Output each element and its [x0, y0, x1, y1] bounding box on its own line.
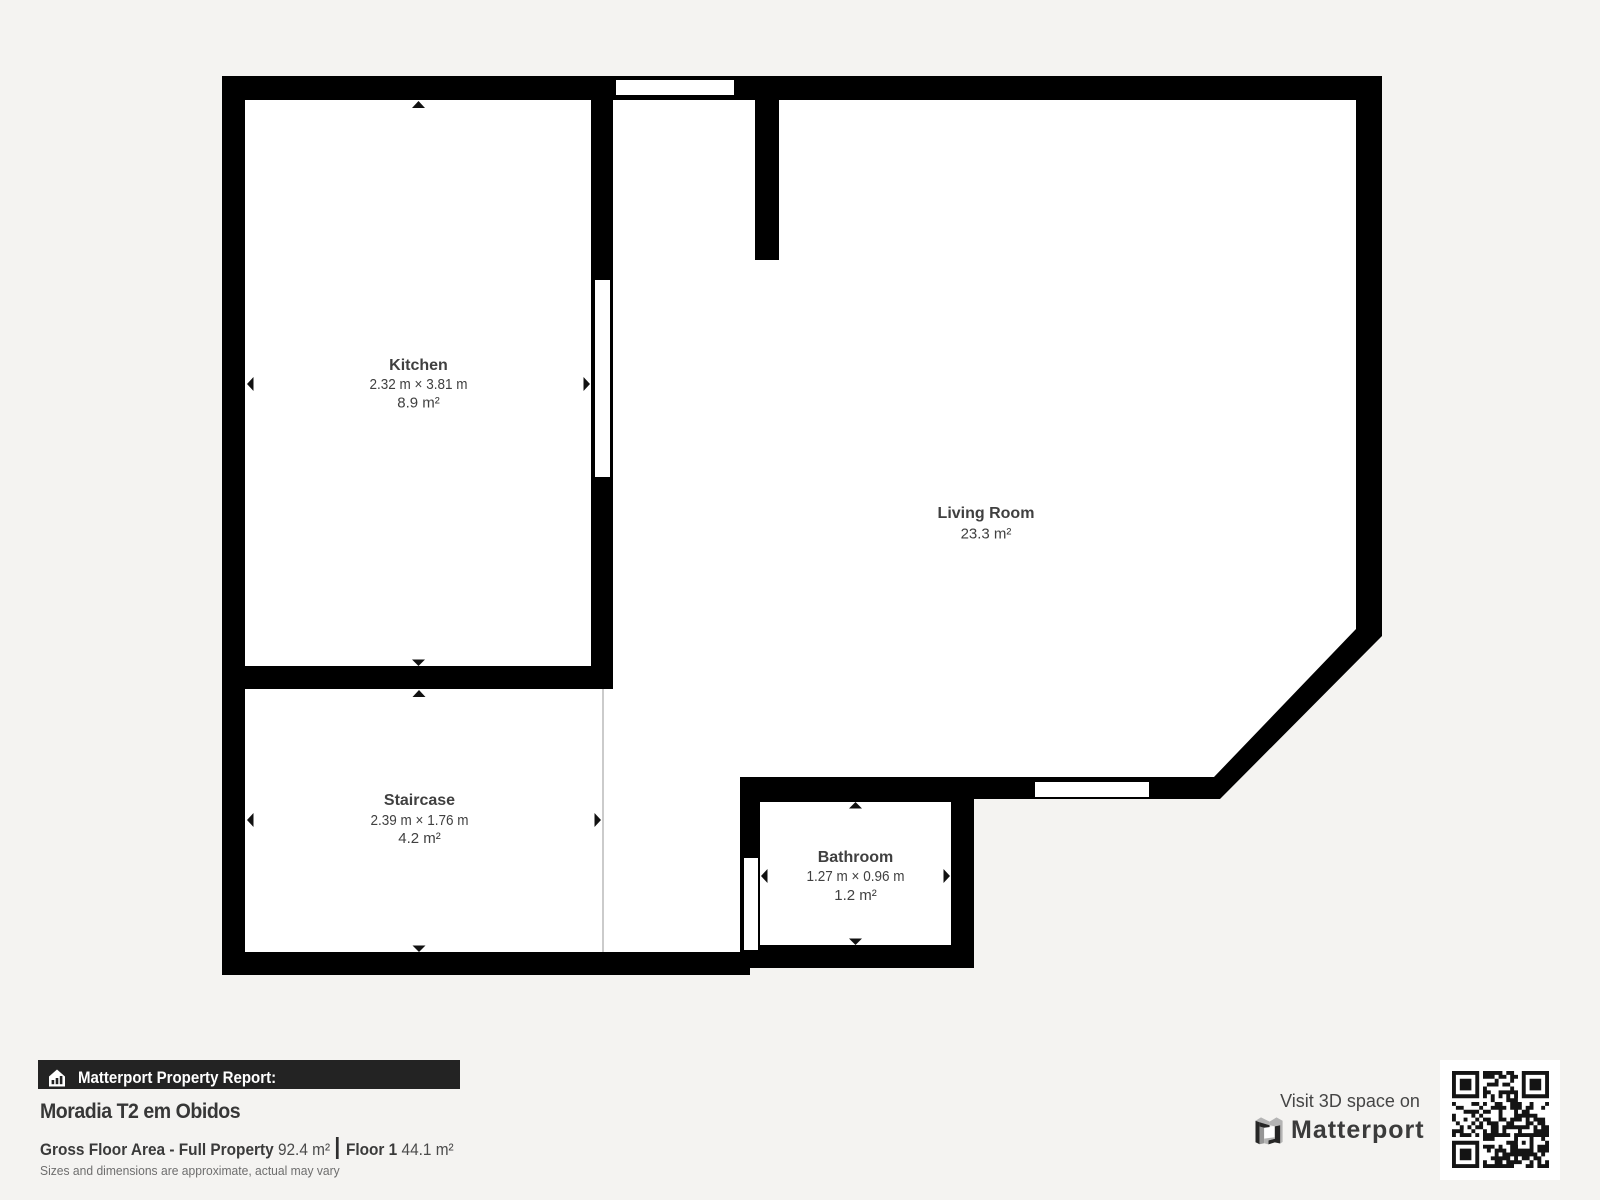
- svg-text:Bathroom: Bathroom: [818, 849, 894, 866]
- svg-text:Living Room: Living Room: [938, 505, 1035, 522]
- svg-text:Kitchen: Kitchen: [389, 357, 448, 374]
- svg-text:8.9 m²: 8.9 m²: [397, 395, 440, 412]
- svg-text:1.27 m × 0.96 m: 1.27 m × 0.96 m: [807, 868, 905, 885]
- svg-text:Staircase: Staircase: [384, 792, 455, 809]
- svg-text:23.3 m²: 23.3 m²: [961, 526, 1012, 543]
- svg-text:4.2 m²: 4.2 m²: [398, 830, 441, 847]
- svg-text:2.32 m × 3.81 m: 2.32 m × 3.81 m: [370, 376, 468, 393]
- svg-text:2.39 m × 1.76 m: 2.39 m × 1.76 m: [371, 812, 469, 829]
- svg-text:1.2 m²: 1.2 m²: [834, 887, 877, 904]
